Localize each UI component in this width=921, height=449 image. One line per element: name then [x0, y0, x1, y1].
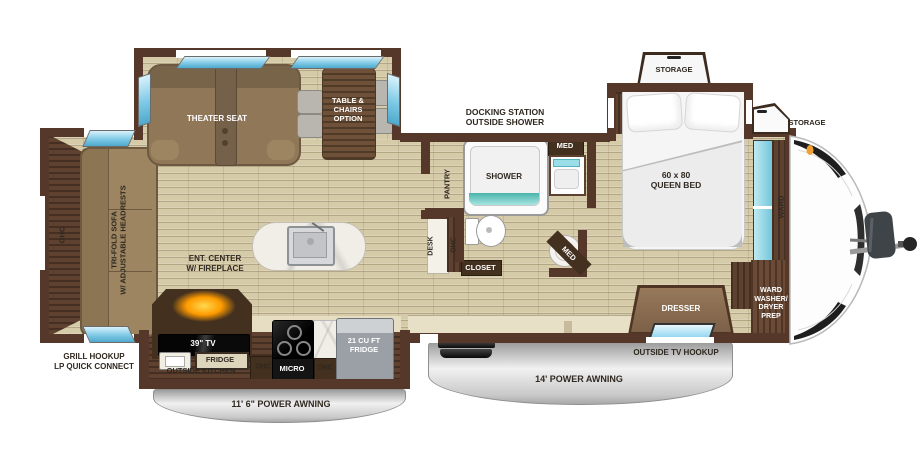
queen-bed: [622, 88, 745, 250]
outside-tv-hookup-label: OUTSIDE TV HOOKUP: [626, 348, 726, 358]
toilet-wall-side: [455, 208, 464, 262]
stove: [272, 320, 314, 359]
outside-kitchen-label: OUTSIDE KITCHEN: [158, 366, 244, 375]
fridge-21-label: 21 CU FT FRIDGE: [336, 336, 392, 354]
kitchen-wall-bottom: [139, 379, 410, 389]
storage-front-label: STORAGE: [787, 118, 827, 127]
ward-doors: [753, 140, 774, 278]
slide-window1: [175, 56, 270, 69]
bed-slide-window-right: [746, 100, 752, 124]
slide-window2: [289, 56, 384, 69]
bath-vanity-sink: [549, 155, 586, 196]
counter-strip-entry: [408, 315, 633, 335]
fireplace-glow: [172, 290, 236, 322]
shower-label: SHOWER: [469, 172, 539, 182]
bed-storage-label: STORAGE: [644, 65, 704, 74]
island-sink: [287, 226, 335, 266]
pantry-label: PANTRY: [442, 169, 451, 199]
bath-med-label: MED: [548, 141, 582, 150]
rear-bottom-window: [82, 326, 136, 343]
front-cap-and-hitch: [786, 92, 921, 362]
kitchen-ohc-right-label: OHC: [317, 365, 333, 374]
microwave-label: MICRO: [272, 364, 312, 373]
desk-ohc-label: OHC: [451, 237, 460, 253]
tv-39-label: 39" TV: [168, 339, 238, 349]
bed-slide-wall-top: [607, 83, 753, 92]
dinette-table-label: TABLE & CHAIRS OPTION: [313, 96, 383, 123]
rear-left-window-gap: [40, 196, 45, 270]
dresser-label: DRESSER: [631, 304, 731, 314]
entry-door-gap: [420, 334, 438, 343]
kitchen-ohc-left-label: OHC: [255, 364, 271, 373]
bath-wall-right: [587, 140, 596, 208]
docking-station-label: DOCKING STATION OUTSIDE SHOWER: [455, 107, 555, 127]
kitchen-awning-label: 11' 6" POWER AWNING: [206, 399, 356, 410]
ward-washer-label: WARD WASHER/ DRYER PREP: [741, 286, 801, 321]
main-awning-label: 14' POWER AWNING: [504, 374, 654, 385]
ent-center-label: ENT. CENTER W/ FIREPLACE: [165, 254, 265, 273]
bottom-wall-main: [408, 333, 795, 343]
rear-ohc-label: OHC: [57, 227, 66, 244]
slide-window-right: [387, 73, 400, 127]
slide-window-left: [138, 73, 151, 127]
front-storage-handle: [757, 110, 767, 113]
outside-fridge-label: FRIDGE: [195, 355, 245, 364]
pantry-wall-left: [421, 140, 430, 174]
bed-slide-window-left: [608, 98, 614, 128]
toilet: [465, 215, 505, 246]
bed-storage-handle: [667, 56, 681, 59]
closet-label: CLOSET: [461, 263, 500, 272]
grill-hookup-label: GRILL HOOKUP LP QUICK CONNECT: [44, 352, 144, 371]
theater-seat-label: THEATER SEAT: [167, 114, 267, 124]
queen-bed-label: 60 x 80 QUEEN BED: [626, 170, 726, 190]
ward-label: WARD: [776, 196, 785, 219]
dresser-tv-sill: [646, 337, 714, 343]
desk-label: DESK: [428, 236, 437, 255]
trifold-sofa-label: TRI-FOLD SOFA W/ ADJUSTABLE HEADRESTS: [110, 185, 129, 294]
floorplan: 11' 6" POWER AWNING 14' POWER AWNING OUT…: [0, 0, 921, 449]
rear-top-window: [82, 130, 136, 147]
ward-door-split: [753, 206, 772, 209]
